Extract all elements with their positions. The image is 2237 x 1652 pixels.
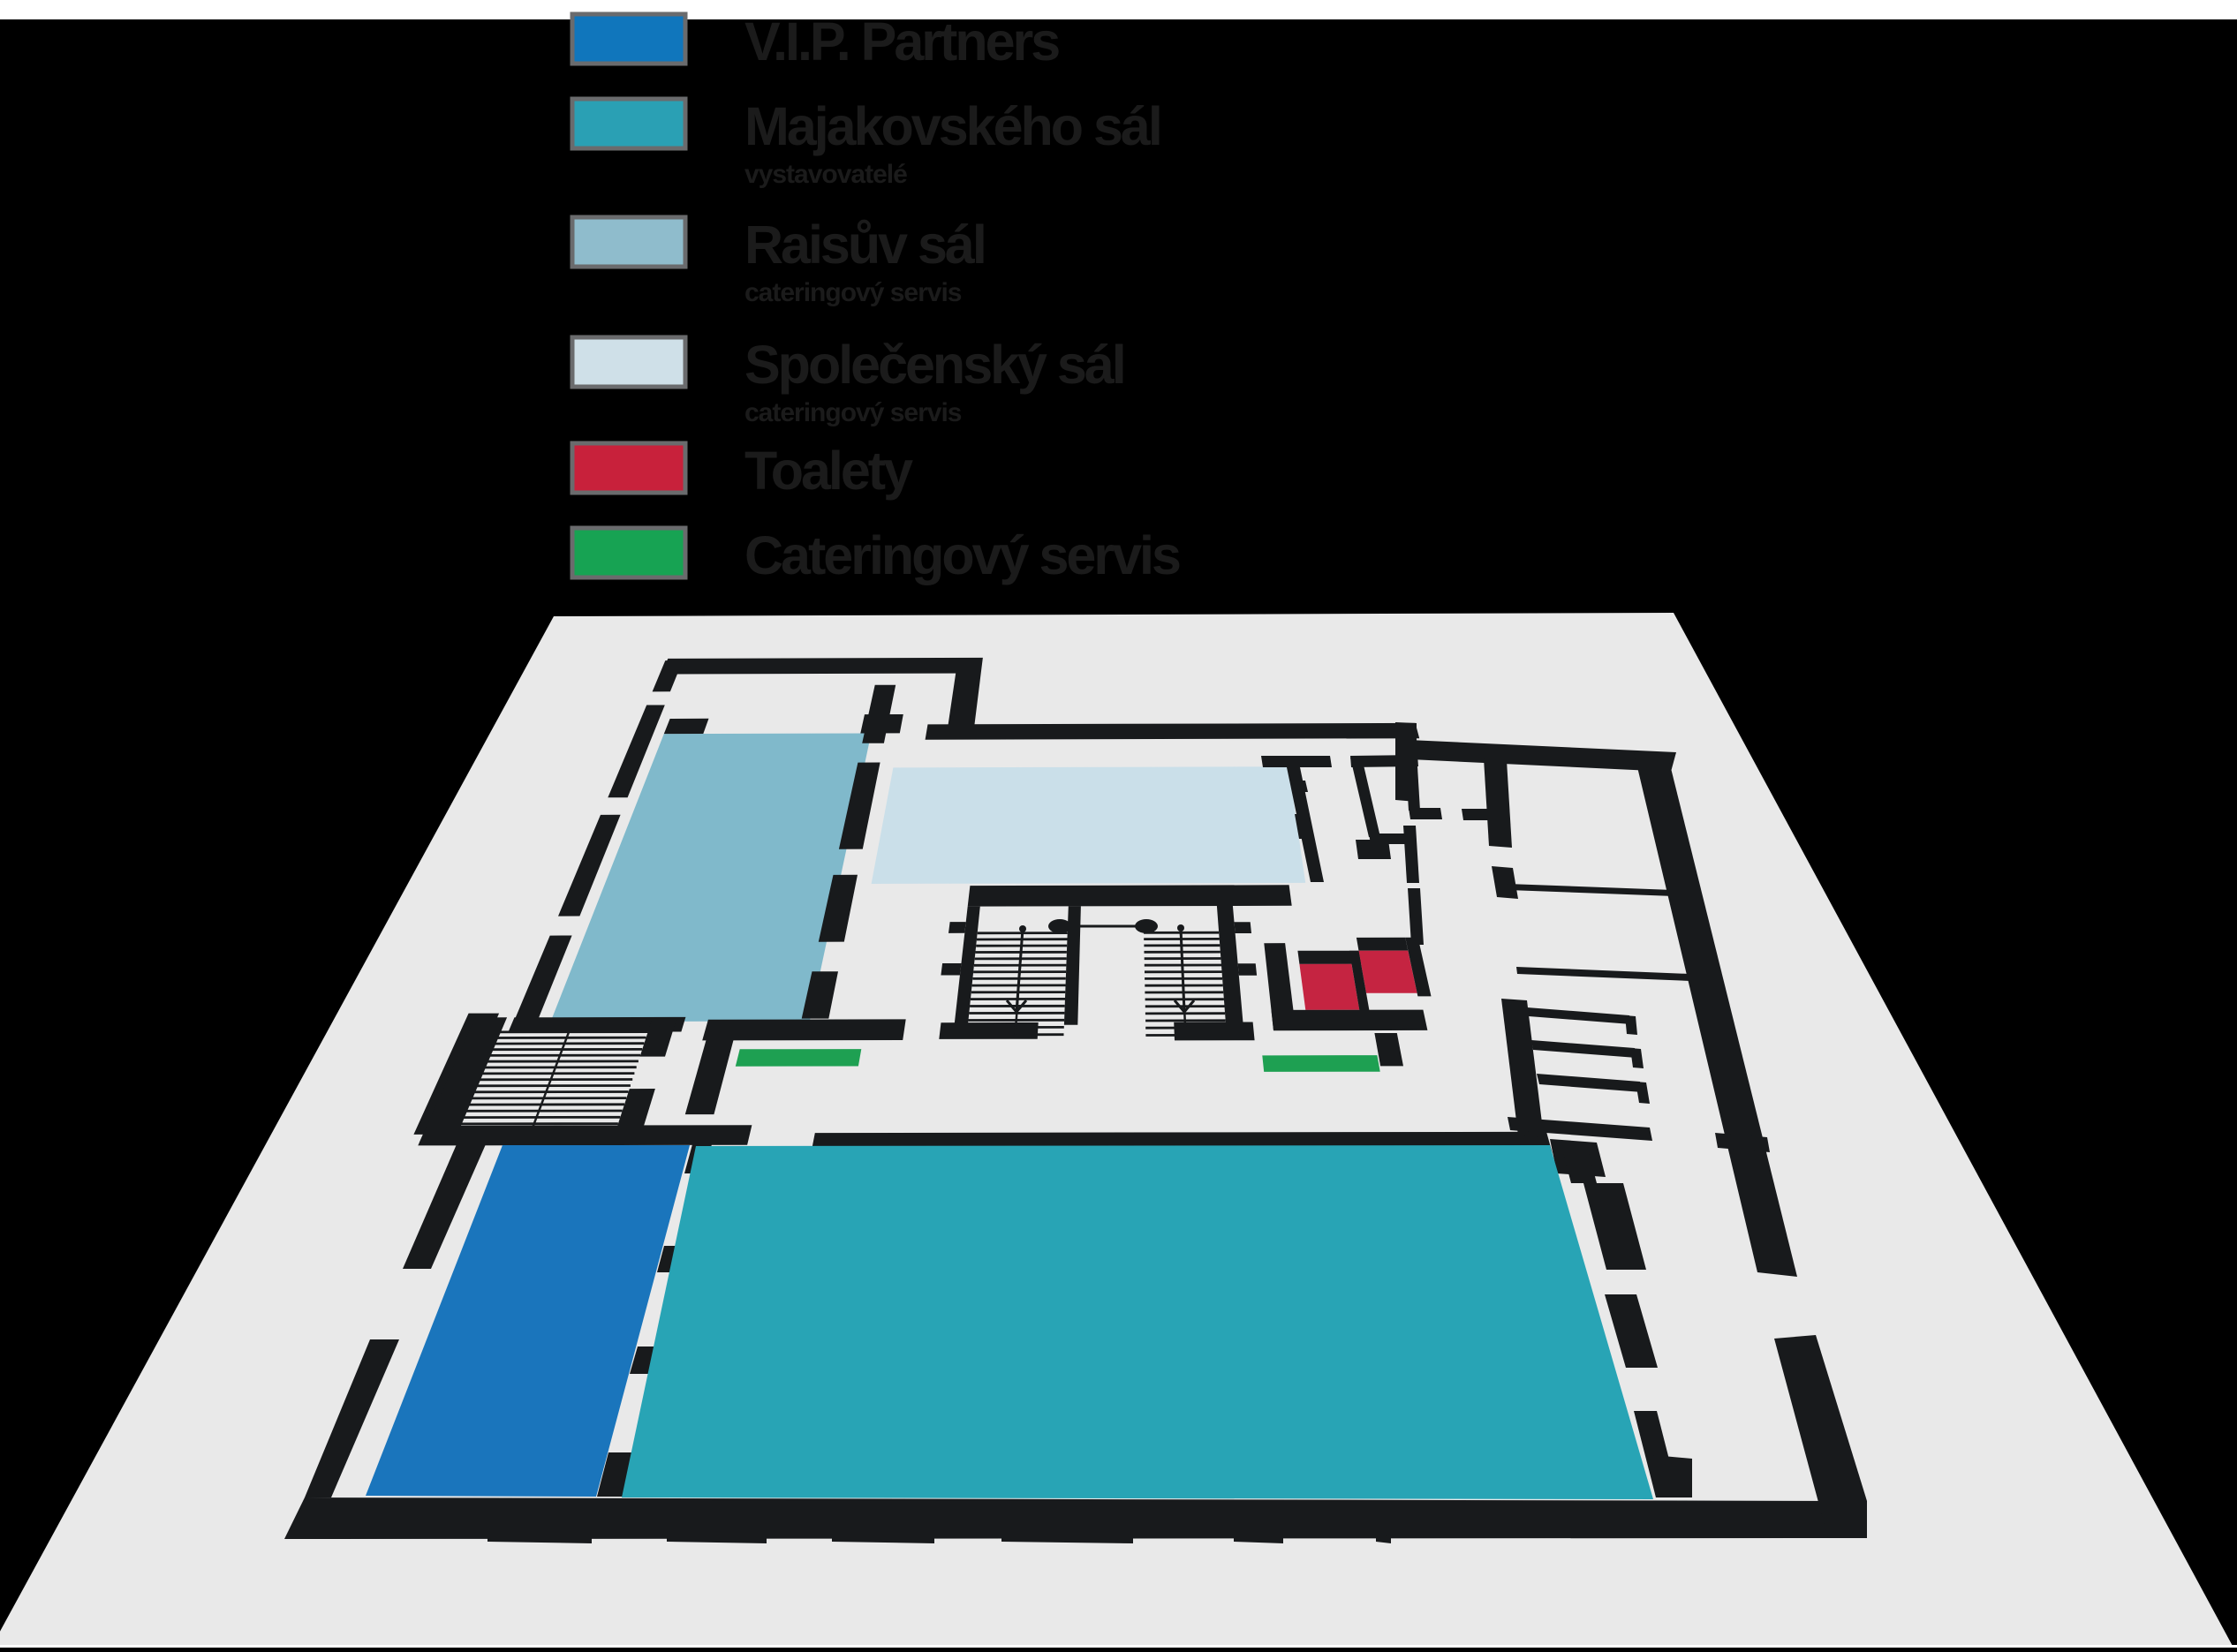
svg-text:Majakovského sál: Majakovského sál <box>744 96 1160 156</box>
svg-text:V.I.P. Partners: V.I.P. Partners <box>744 11 1059 72</box>
svg-text:Společenský sál: Společenský sál <box>744 335 1124 395</box>
svg-text:Raisův sál: Raisův sál <box>744 215 985 275</box>
svg-text:Toalety: Toalety <box>744 441 913 501</box>
svg-text:Cateringový servis: Cateringový servis <box>744 525 1180 585</box>
svg-text:cateringový servis: cateringový servis <box>744 278 962 307</box>
svg-text:vystavovatelé: vystavovatelé <box>744 160 907 189</box>
svg-text:cateringový servis: cateringový servis <box>744 398 962 427</box>
